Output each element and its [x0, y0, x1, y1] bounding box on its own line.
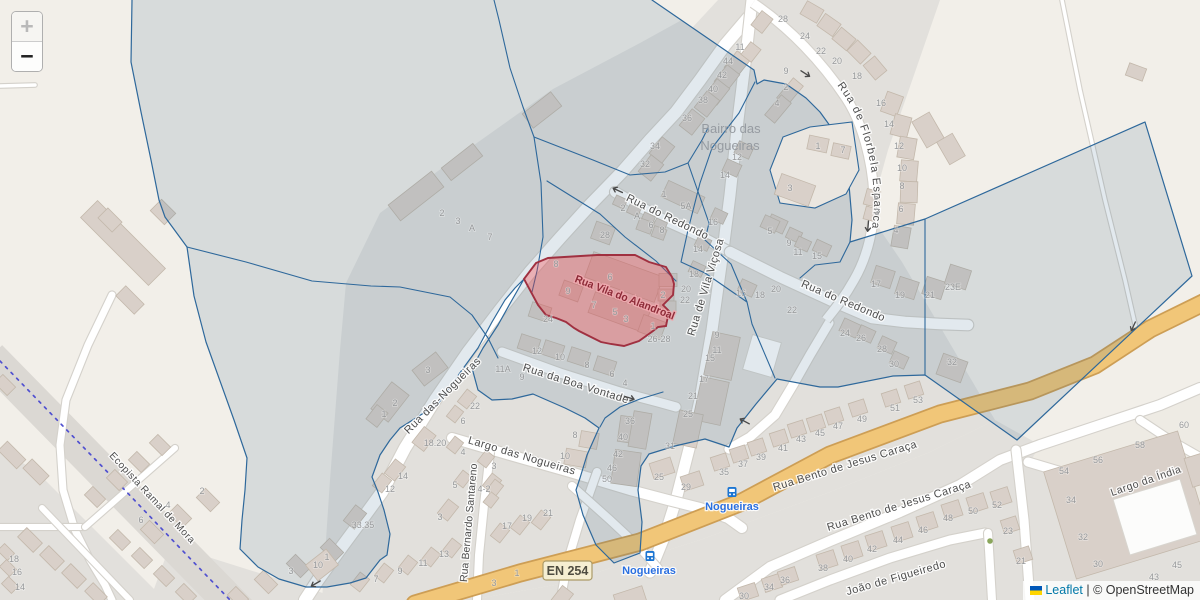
svg-text:6: 6 — [609, 369, 614, 379]
svg-text:9: 9 — [397, 566, 402, 576]
svg-text:2: 2 — [392, 398, 397, 408]
svg-text:1: 1 — [514, 568, 519, 578]
svg-text:11: 11 — [418, 558, 427, 568]
svg-text:6: 6 — [460, 416, 465, 426]
svg-text:12: 12 — [894, 141, 904, 151]
svg-text:45: 45 — [1172, 560, 1182, 570]
svg-text:1: 1 — [661, 189, 666, 199]
svg-text:21: 21 — [543, 508, 553, 518]
svg-text:10: 10 — [560, 451, 570, 461]
svg-text:4-2: 4-2 — [477, 484, 490, 494]
svg-text:3: 3 — [874, 207, 879, 217]
svg-text:Nogueiras: Nogueiras — [622, 565, 676, 577]
svg-text:Bairro das: Bairro das — [701, 121, 761, 136]
svg-text:26: 26 — [856, 333, 866, 343]
svg-text:7: 7 — [487, 232, 492, 242]
svg-text:6: 6 — [648, 220, 653, 230]
svg-text:1: 1 — [815, 141, 820, 151]
svg-text:4: 4 — [460, 447, 465, 457]
svg-text:12: 12 — [532, 346, 542, 356]
svg-text:15: 15 — [812, 251, 822, 261]
svg-text:36: 36 — [780, 575, 790, 585]
svg-text:22: 22 — [470, 401, 480, 411]
svg-text:14: 14 — [398, 471, 408, 481]
svg-text:32: 32 — [1078, 532, 1088, 542]
svg-text:10: 10 — [897, 163, 907, 173]
svg-text:7: 7 — [591, 300, 596, 310]
svg-text:1: 1 — [324, 552, 329, 562]
svg-text:17: 17 — [699, 374, 709, 384]
svg-text:25: 25 — [654, 472, 664, 482]
svg-text:12: 12 — [732, 152, 742, 162]
svg-text:8: 8 — [899, 181, 904, 191]
svg-text:8: 8 — [553, 259, 558, 269]
svg-text:42: 42 — [717, 70, 727, 80]
svg-text:37: 37 — [738, 459, 748, 469]
svg-text:5: 5 — [452, 480, 457, 490]
svg-text:56: 56 — [1093, 455, 1103, 465]
svg-text:9: 9 — [714, 330, 719, 340]
svg-text:12: 12 — [385, 484, 395, 494]
svg-text:8: 8 — [659, 225, 664, 235]
svg-text:14: 14 — [884, 119, 894, 129]
svg-text:24: 24 — [840, 328, 850, 338]
svg-text:47: 47 — [833, 421, 843, 431]
svg-text:23: 23 — [1003, 526, 1013, 536]
svg-text:11: 11 — [735, 42, 744, 52]
svg-text:10: 10 — [313, 560, 323, 570]
svg-text:7: 7 — [373, 574, 378, 584]
svg-text:4: 4 — [893, 225, 898, 235]
svg-text:18: 18 — [689, 269, 699, 279]
svg-text:36: 36 — [682, 113, 692, 123]
svg-text:41: 41 — [778, 443, 788, 453]
svg-text:14: 14 — [15, 582, 25, 592]
svg-text:18: 18 — [852, 71, 862, 81]
svg-text:9: 9 — [565, 286, 570, 296]
svg-text:6: 6 — [138, 515, 143, 525]
svg-text:29: 29 — [681, 482, 691, 492]
svg-text:18: 18 — [9, 554, 19, 564]
svg-text:28: 28 — [778, 14, 788, 24]
svg-text:11A: 11A — [495, 364, 510, 374]
svg-text:45: 45 — [815, 428, 825, 438]
svg-text:48: 48 — [943, 513, 953, 523]
svg-text:32: 32 — [947, 357, 957, 367]
svg-text:20: 20 — [771, 284, 781, 294]
svg-text:6: 6 — [607, 272, 612, 282]
svg-text:3: 3 — [623, 314, 628, 324]
svg-text:28: 28 — [877, 344, 887, 354]
svg-text:30: 30 — [739, 591, 749, 600]
svg-text:21: 21 — [1016, 556, 1026, 566]
svg-text:31: 31 — [665, 441, 675, 451]
svg-text:28: 28 — [600, 230, 610, 240]
svg-text:EN 254: EN 254 — [547, 564, 589, 578]
svg-text:Nogueiras: Nogueiras — [700, 138, 760, 153]
svg-text:35: 35 — [719, 467, 729, 477]
svg-text:39: 39 — [756, 452, 766, 462]
svg-text:5: 5 — [873, 192, 878, 202]
svg-text:21: 21 — [688, 391, 698, 401]
svg-text:38: 38 — [818, 563, 828, 573]
svg-text:6: 6 — [898, 204, 903, 214]
svg-text:25: 25 — [683, 409, 693, 419]
svg-text:3: 3 — [437, 512, 442, 522]
svg-text:42: 42 — [613, 449, 623, 459]
svg-text:30: 30 — [889, 359, 899, 369]
svg-text:33.35: 33.35 — [352, 520, 375, 530]
svg-text:34: 34 — [1066, 495, 1076, 505]
svg-text:40: 40 — [708, 84, 718, 94]
svg-text:38: 38 — [698, 95, 708, 105]
svg-text:3: 3 — [491, 461, 496, 471]
svg-text:15: 15 — [705, 353, 715, 363]
svg-text:18: 18 — [755, 290, 765, 300]
svg-text:54: 54 — [1059, 466, 1069, 476]
svg-text:23E: 23E — [945, 282, 961, 292]
svg-text:1: 1 — [650, 321, 655, 331]
svg-text:44: 44 — [893, 535, 903, 545]
svg-text:30: 30 — [1093, 559, 1103, 569]
svg-text:5A: 5A — [680, 201, 691, 211]
svg-text:22: 22 — [787, 305, 797, 315]
svg-text:60: 60 — [1179, 420, 1189, 430]
svg-text:3: 3 — [491, 578, 496, 588]
svg-text:51: 51 — [890, 403, 900, 413]
svg-text:19: 19 — [895, 290, 905, 300]
svg-text:9: 9 — [786, 238, 791, 248]
svg-text:24: 24 — [800, 31, 810, 41]
svg-text:40: 40 — [618, 432, 628, 442]
svg-text:8: 8 — [584, 360, 589, 370]
svg-text:3: 3 — [787, 183, 792, 193]
svg-text:4: 4 — [622, 378, 627, 388]
svg-text:20: 20 — [832, 56, 842, 66]
svg-text:17: 17 — [871, 279, 881, 289]
svg-text:11: 11 — [793, 247, 802, 257]
svg-text:21: 21 — [925, 290, 935, 300]
svg-text:58: 58 — [1135, 440, 1145, 450]
svg-text:5: 5 — [767, 226, 772, 236]
svg-text:3: 3 — [288, 566, 293, 576]
svg-text:53: 53 — [913, 395, 923, 405]
svg-text:20: 20 — [681, 284, 691, 294]
svg-text:3: 3 — [425, 365, 430, 375]
svg-text:40: 40 — [843, 554, 853, 564]
svg-text:52: 52 — [992, 500, 1002, 510]
svg-text:34: 34 — [764, 582, 774, 592]
svg-text:13: 13 — [439, 549, 449, 559]
svg-text:14: 14 — [720, 170, 730, 180]
svg-text:24: 24 — [543, 314, 553, 324]
svg-text:4: 4 — [774, 98, 779, 108]
svg-text:4: 4 — [165, 500, 170, 510]
svg-text:A: A — [469, 223, 475, 233]
svg-text:2: 2 — [439, 208, 444, 218]
svg-text:36: 36 — [625, 416, 635, 426]
svg-text:32: 32 — [640, 159, 650, 169]
svg-text:26-28: 26-28 — [647, 334, 670, 344]
svg-text:22: 22 — [680, 295, 690, 305]
svg-text:34: 34 — [650, 141, 660, 151]
svg-text:16: 16 — [12, 567, 22, 577]
svg-text:49: 49 — [857, 414, 867, 424]
svg-text:2: 2 — [783, 82, 788, 92]
svg-text:16: 16 — [876, 98, 886, 108]
svg-text:46: 46 — [607, 463, 617, 473]
svg-text:10: 10 — [555, 352, 565, 362]
svg-text:5: 5 — [612, 307, 617, 317]
svg-text:43: 43 — [796, 434, 806, 444]
svg-text:3: 3 — [455, 216, 460, 226]
svg-text:8: 8 — [572, 430, 577, 440]
svg-text:1: 1 — [381, 409, 386, 419]
svg-text:2: 2 — [620, 203, 625, 213]
svg-text:22: 22 — [816, 46, 826, 56]
svg-text:17: 17 — [502, 521, 512, 531]
svg-text:9: 9 — [783, 66, 788, 76]
svg-text:44: 44 — [723, 56, 733, 66]
svg-text:46: 46 — [918, 525, 928, 535]
svg-text:A: A — [634, 211, 640, 221]
svg-text:2: 2 — [199, 486, 204, 496]
svg-text:16: 16 — [708, 217, 718, 227]
svg-text:19: 19 — [522, 513, 532, 523]
svg-text:50: 50 — [602, 474, 612, 484]
svg-text:2: 2 — [660, 290, 665, 300]
svg-text:42: 42 — [867, 544, 877, 554]
svg-text:7: 7 — [840, 145, 845, 155]
svg-text:Nogueiras: Nogueiras — [705, 501, 759, 513]
svg-text:18.20: 18.20 — [424, 438, 447, 448]
svg-text:16: 16 — [736, 288, 746, 298]
svg-text:50: 50 — [968, 506, 978, 516]
svg-text:9: 9 — [519, 372, 524, 382]
svg-text:14: 14 — [693, 244, 703, 254]
